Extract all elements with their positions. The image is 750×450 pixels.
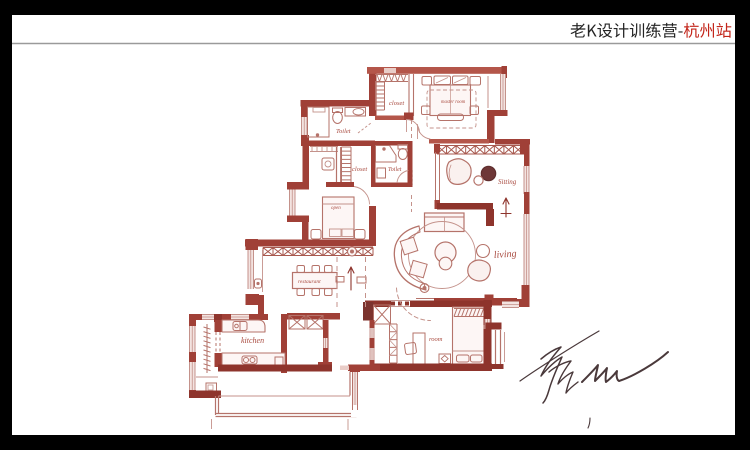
svg-text:living: living [493, 248, 516, 261]
svg-text:closet: closet [352, 166, 367, 173]
svg-text:kitchen: kitchen [241, 336, 264, 345]
svg-text:master room: master room [441, 100, 466, 105]
svg-text:Toilet: Toilet [388, 167, 402, 173]
svg-text:Toilet: Toilet [336, 128, 351, 135]
svg-text:closet: closet [389, 100, 404, 107]
svg-text:restaurant: restaurant [298, 279, 321, 285]
svg-text:open: open [331, 206, 341, 211]
svg-text:Sitting: Sitting [498, 178, 517, 186]
svg-text:room: room [429, 336, 443, 343]
